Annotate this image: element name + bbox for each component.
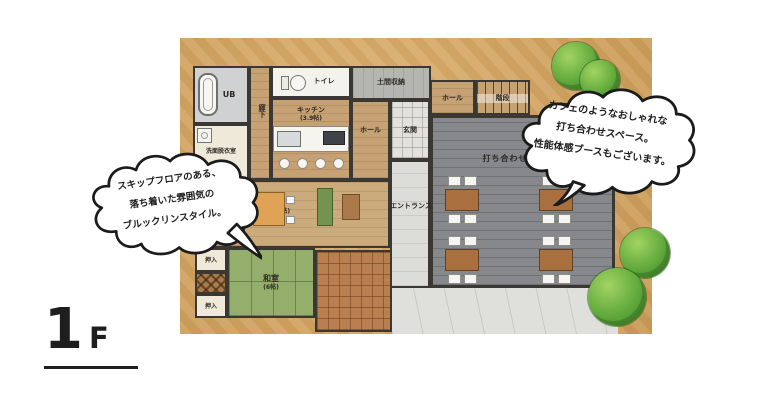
room-label-hall-left: ホール <box>353 126 388 135</box>
meeting-chair <box>558 274 571 284</box>
tree-icon <box>588 268 646 326</box>
meeting-chair <box>542 214 555 224</box>
toilet-bowl <box>290 75 306 91</box>
room-label-washitsu-size: (6帖) <box>229 284 313 292</box>
stool <box>297 158 308 169</box>
floor-plan-page: UB 洗面脱衣室 廊下 トイレ キッチン (3.9帖) 土間収納 ホール 玄関 … <box>0 0 778 400</box>
terrace-tiles <box>315 250 392 332</box>
shelf <box>317 188 333 226</box>
bathtub <box>198 73 218 116</box>
room-label-washitsu: 和室 <box>229 274 313 284</box>
room-bathroom: UB <box>193 66 249 124</box>
toilet-tank <box>281 76 289 90</box>
meeting-table <box>539 249 573 271</box>
meeting-chair <box>448 236 461 246</box>
floor-number: 1 <box>44 297 83 362</box>
meeting-chair <box>464 274 477 284</box>
room-label-kitchen-size: (3.9帖) <box>273 115 349 123</box>
dining-chair <box>286 196 295 204</box>
kitchen-sink <box>277 131 301 147</box>
room-label-toilet: トイレ <box>299 77 349 86</box>
room-toilet: トイレ <box>271 66 351 98</box>
rug <box>342 194 360 220</box>
room-label-hall-right: ホール <box>432 94 473 103</box>
room-label-doma: 土間収納 <box>353 78 429 87</box>
stool <box>315 158 326 169</box>
meeting-chair <box>448 274 461 284</box>
speech-bubble-left: スキップフロアのある、 落ち着いた雰囲気の ブルックリンスタイル。 <box>82 148 262 266</box>
room-entrance: エントランス <box>390 160 430 288</box>
room-label-corridor: 廊下 <box>257 104 266 118</box>
stool <box>279 158 290 169</box>
meeting-chair <box>448 176 461 186</box>
kitchen-stove <box>323 131 345 145</box>
room-label-kitchen: キッチン <box>273 106 349 115</box>
concrete-approach <box>392 288 618 334</box>
dining-chair <box>286 216 295 224</box>
floor-label: 1F <box>44 302 109 358</box>
tokonoma-hatch <box>195 272 227 294</box>
speech-bubble-right: カフェのようなおしゃれな 打ち合わせスペース。 性能体感ブースもございます。 <box>500 84 710 206</box>
meeting-chair <box>542 274 555 284</box>
washing-machine <box>197 128 212 143</box>
room-label-oshiire-bottom: 押入 <box>197 303 225 311</box>
room-label-genkan: 玄関 <box>392 126 428 135</box>
meeting-chair <box>464 236 477 246</box>
floor-label-underline <box>44 366 138 369</box>
room-genkan: 玄関 <box>390 100 430 160</box>
meeting-chair <box>542 236 555 246</box>
meeting-chair <box>558 214 571 224</box>
meeting-chair <box>464 176 477 186</box>
room-hall-right: ホール <box>430 80 475 115</box>
meeting-chair <box>448 214 461 224</box>
room-hall-left: ホール <box>351 100 390 180</box>
floor-suffix: F <box>89 321 109 355</box>
room-kitchen: キッチン (3.9帖) <box>271 98 351 180</box>
meeting-table <box>445 249 479 271</box>
room-doma-storage: 土間収納 <box>351 66 431 100</box>
meeting-chair <box>558 236 571 246</box>
meeting-table <box>445 189 479 211</box>
meeting-chair <box>464 214 477 224</box>
stool <box>333 158 344 169</box>
room-closet-bottom: 押入 <box>195 294 227 318</box>
